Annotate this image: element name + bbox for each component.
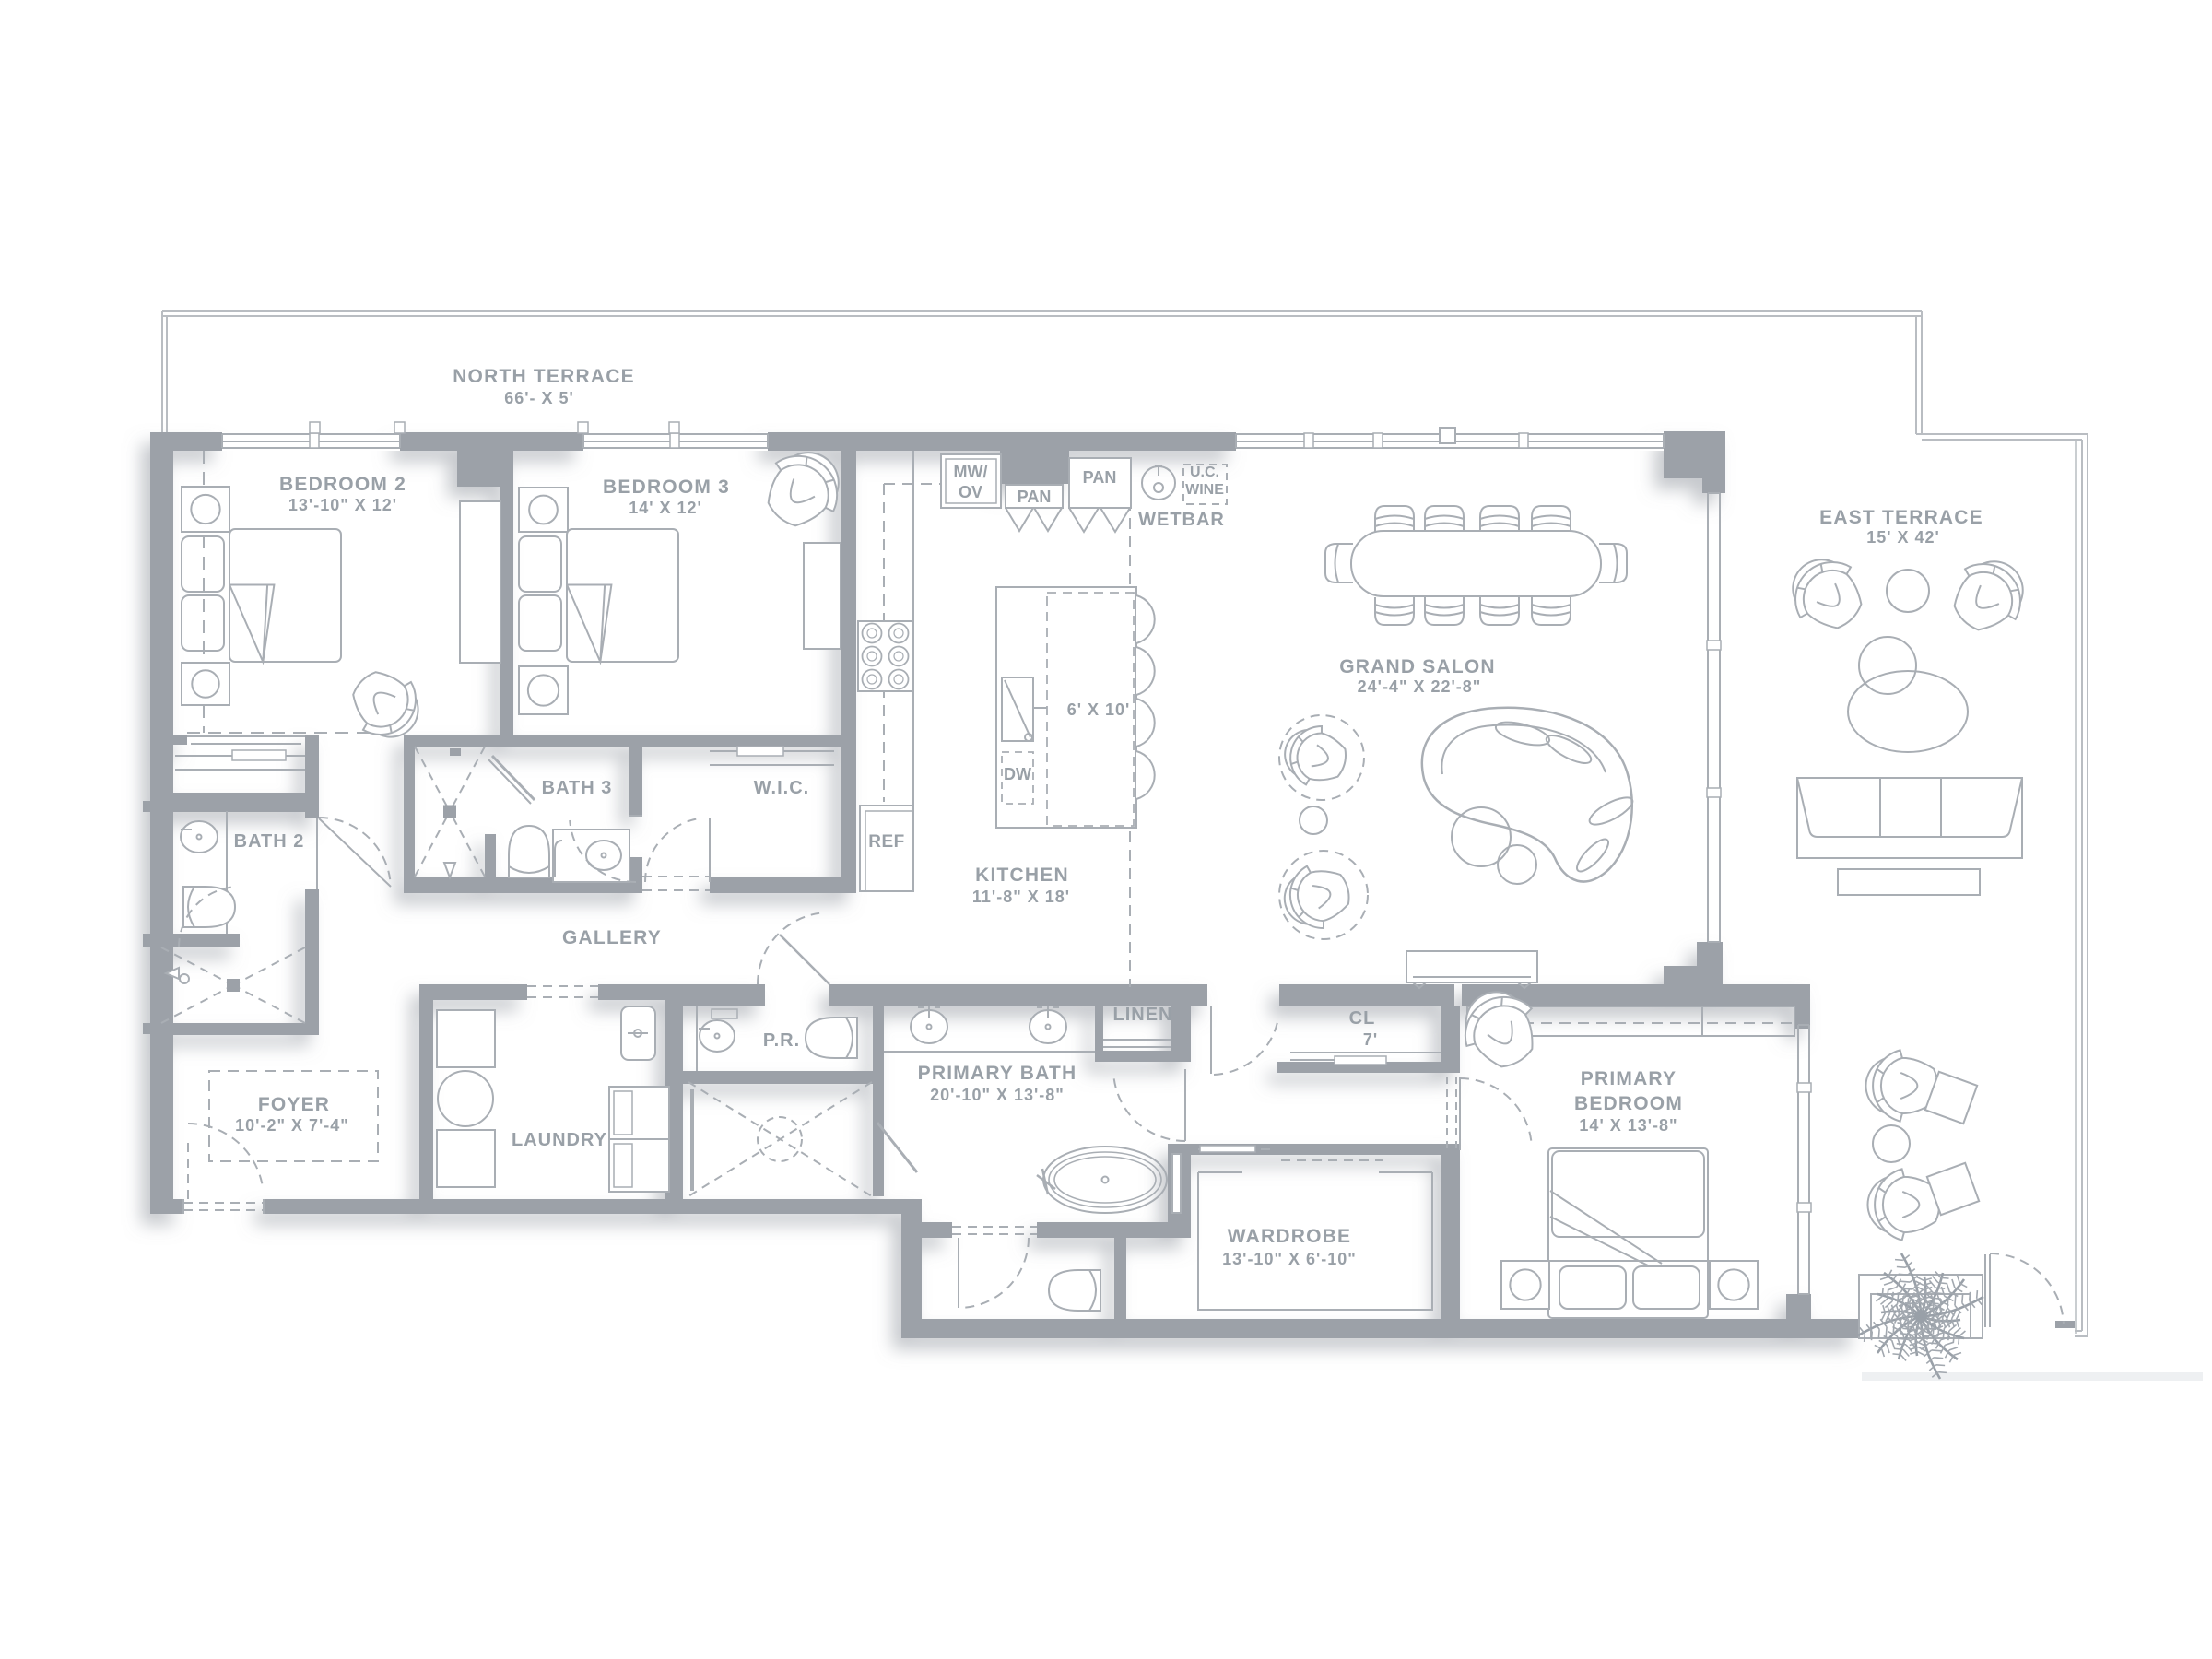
svg-text:GRAND SALON: GRAND SALON [1339, 656, 1496, 677]
svg-text:BEDROOM: BEDROOM [1574, 1093, 1683, 1114]
svg-text:PAN: PAN [1018, 488, 1052, 506]
svg-text:7': 7' [1363, 1030, 1378, 1049]
svg-text:11'-8" X 18': 11'-8" X 18' [972, 888, 1070, 906]
svg-text:WARDROBE: WARDROBE [1228, 1226, 1351, 1247]
svg-text:P.R.: P.R. [763, 1030, 800, 1051]
svg-text:66'- X 5': 66'- X 5' [504, 389, 574, 407]
svg-text:13'-10" X 6'-10": 13'-10" X 6'-10" [1222, 1250, 1357, 1268]
svg-text:NORTH TERRACE: NORTH TERRACE [453, 366, 635, 387]
svg-text:14' X 12': 14' X 12' [629, 499, 702, 517]
svg-text:13'-10" X 12': 13'-10" X 12' [288, 496, 397, 514]
svg-text:WINE: WINE [1185, 482, 1224, 498]
svg-text:BATH 3: BATH 3 [542, 778, 613, 798]
svg-text:GALLERY: GALLERY [562, 927, 662, 948]
svg-text:WETBAR: WETBAR [1138, 510, 1225, 530]
svg-text:BEDROOM 2: BEDROOM 2 [279, 474, 406, 495]
svg-text:PAN: PAN [1083, 468, 1117, 487]
svg-text:PRIMARY BATH: PRIMARY BATH [918, 1063, 1077, 1084]
svg-text:REF: REF [868, 832, 905, 852]
svg-text:CL: CL [1349, 1008, 1376, 1029]
svg-text:FOYER: FOYER [258, 1094, 330, 1115]
svg-text:PRIMARY: PRIMARY [1581, 1068, 1677, 1089]
svg-text:10'-2" X 7'-4": 10'-2" X 7'-4" [235, 1116, 349, 1135]
svg-text:U.C.: U.C. [1190, 465, 1219, 480]
svg-text:BEDROOM 3: BEDROOM 3 [603, 477, 730, 498]
svg-text:EAST TERRACE: EAST TERRACE [1819, 507, 1983, 528]
svg-text:W.I.C.: W.I.C. [754, 778, 809, 798]
svg-text:15' X 42': 15' X 42' [1866, 528, 1940, 547]
svg-text:24'-4" X 22'-8": 24'-4" X 22'-8" [1358, 677, 1482, 696]
svg-text:LINEN: LINEN [1113, 1005, 1173, 1025]
svg-text:6' X 10': 6' X 10' [1067, 700, 1131, 719]
svg-text:LAUNDRY: LAUNDRY [512, 1130, 607, 1150]
svg-text:20'-10" X 13'-8": 20'-10" X 13'-8" [930, 1086, 1065, 1104]
svg-text:DW: DW [1004, 765, 1031, 783]
svg-text:OV: OV [959, 483, 982, 501]
svg-text:BATH 2: BATH 2 [234, 831, 305, 852]
svg-text:MW/: MW/ [954, 463, 988, 481]
svg-text:14' X 13'-8": 14' X 13'-8" [1579, 1116, 1677, 1135]
svg-text:KITCHEN: KITCHEN [975, 865, 1069, 886]
